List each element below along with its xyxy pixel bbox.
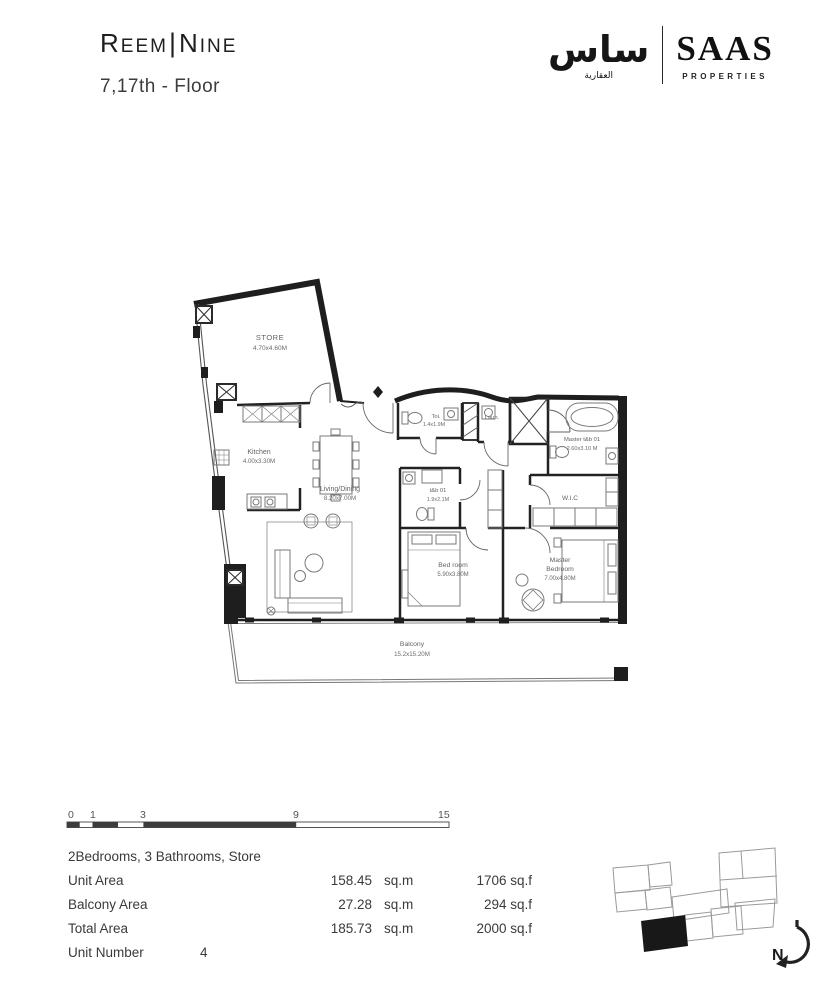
wic-label: W.I.C: [562, 495, 578, 502]
master-bedroom-label-1: Master: [550, 557, 572, 564]
living-dining-dims: 8.20x7.00M: [324, 495, 356, 502]
total-area-label: Total Area: [68, 921, 128, 936]
logo-divider-bar: |: [168, 28, 179, 58]
key-plan: [605, 845, 780, 965]
unit-area-label: Unit Area: [68, 873, 124, 888]
balcony-dims: 15.2x15.20M: [394, 651, 430, 658]
saas-latin-wordmark: SAAS PROPERTIES: [676, 30, 773, 81]
logo-word1-initial: R: [100, 28, 121, 58]
living-dining-label: Living/Dining: [320, 486, 360, 493]
right-wall: [618, 396, 627, 624]
balcony-area-sqf: 294 sq.f: [438, 897, 532, 912]
bedroom-dims: 5.90x3.80M: [437, 572, 468, 578]
scale-tick-0: 0: [68, 809, 74, 821]
total-area-sqm: 185.73: [295, 921, 372, 936]
total-area-sqm-unit: sq.m: [384, 921, 413, 936]
floor-plan: STORE 4.70x4.60M Kitchen 4.00x3.30M Livi…: [170, 270, 650, 710]
saas-properties-logo: ساس العقارية SAAS PROPERTIES: [548, 26, 786, 84]
kitchen-label: Kitchen: [247, 449, 270, 456]
room-labels: STORE 4.70x4.60M Kitchen 4.00x3.30M Livi…: [243, 333, 600, 658]
duct-hatching: [463, 403, 478, 437]
balcony-area-sqm-unit: sq.m: [384, 897, 413, 912]
scale-tick-9: 9: [293, 809, 299, 821]
unit-number-value: 4: [200, 945, 208, 960]
shaft-x: [510, 398, 548, 444]
store-dims: 4.70x4.60M: [253, 345, 287, 352]
logo-word2-initial: N: [179, 28, 200, 58]
scale-tick-15: 15: [438, 809, 450, 821]
balcony-area-label: Balcony Area: [68, 897, 148, 912]
master-bath-label: Master t&b 01: [564, 437, 600, 443]
balcony-label: Balcony: [400, 641, 425, 648]
saas-latin-main: SAAS: [676, 30, 773, 68]
floor-title: 7,17th - Floor: [100, 76, 220, 98]
master-bedroom-dims: 7.00x4.80M: [544, 576, 575, 582]
logo-vertical-divider: [662, 26, 663, 84]
logo-word2-rest: INE: [200, 36, 238, 57]
entry-marker: [373, 386, 383, 398]
scale-tick-1: 1: [90, 809, 96, 821]
key-plan-units: [613, 848, 777, 941]
unit-config: 2Bedrooms, 3 Bathrooms, Store: [68, 849, 261, 864]
saas-latin-sub: PROPERTIES: [682, 72, 768, 81]
reem-nine-logo: REEM|NINE: [100, 28, 237, 59]
toilet-dims: 1.4x1.9M: [423, 422, 446, 428]
bath2-dims: 1.9x2.1M: [427, 497, 450, 503]
scale-bar: 0 1 3 9 15: [66, 808, 454, 834]
unit-area-sqf: 1706 sq.f: [438, 873, 532, 888]
bedroom-label: Bed room: [438, 562, 468, 569]
north-arrow: N: [770, 916, 812, 976]
bath2-label: t&b 01: [430, 488, 447, 494]
balcony-corner-right: [614, 667, 628, 681]
unit-area-sqm-unit: sq.m: [384, 873, 413, 888]
unit-number-label: Unit Number: [68, 945, 144, 960]
master-bath-dims: 2.60x3.10 M: [567, 446, 598, 452]
unit-area-sqm: 158.45: [295, 873, 372, 888]
laundry-label: Laun.: [485, 415, 500, 421]
store-label: STORE: [256, 333, 284, 342]
key-plan-highlighted-unit: [641, 915, 688, 952]
scale-bar-labels: 0 1 3 9 15: [68, 809, 450, 821]
saas-arabic-main: ساس: [548, 29, 649, 71]
saas-arabic-sub: العقارية: [584, 71, 613, 81]
kitchen-dims: 4.00x3.30M: [243, 458, 275, 465]
saas-arabic-wordmark: ساس العقارية: [548, 29, 649, 81]
toilet-label: Toi.: [431, 414, 440, 420]
scale-bar-body: [67, 822, 449, 828]
total-area-sqf: 2000 sq.f: [438, 921, 532, 936]
furniture: [214, 403, 618, 615]
balcony-area-sqm: 27.28: [295, 897, 372, 912]
scale-tick-3: 3: [140, 809, 146, 821]
master-bedroom-label-2: Bedroom: [546, 566, 574, 573]
logo-word1-rest: EEM: [121, 36, 168, 57]
